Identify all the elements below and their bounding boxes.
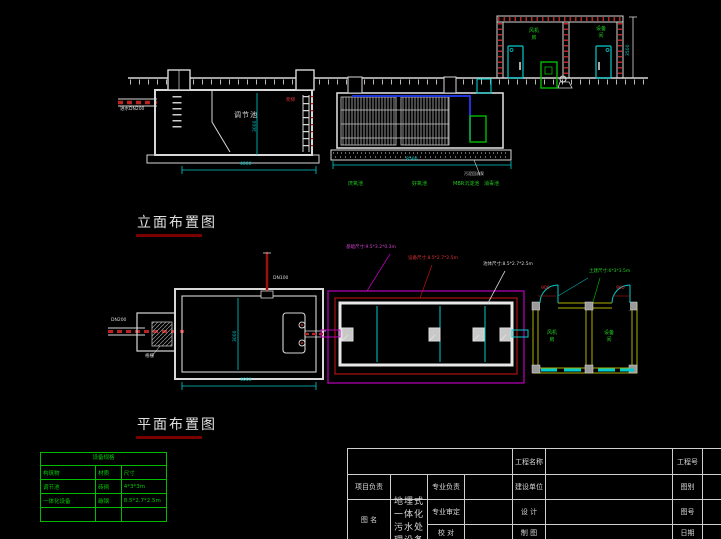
elevation-compartment-anaerobic: 厌氧池 bbox=[348, 182, 363, 188]
date-label: 日期 bbox=[673, 525, 703, 539]
spec-header-structure: 构筑物 bbox=[41, 466, 95, 479]
plan-heading: 平面布置图 bbox=[137, 418, 217, 433]
elevation-compartment-settling: MBR沉淀池 bbox=[453, 182, 479, 188]
spec-table-header-row: 构筑物 材质 尺寸 bbox=[41, 465, 166, 479]
check-value bbox=[465, 525, 513, 539]
plan-vent-label: DN100 bbox=[273, 277, 288, 282]
spec-cell: 调节池 bbox=[41, 480, 95, 493]
spec-cell: 一体化设备 bbox=[41, 494, 95, 507]
design-label: 设 计 bbox=[513, 500, 546, 525]
spec-table-row-equipment: 一体化设备 碳钢 8.5*2.7*2.5m bbox=[41, 493, 166, 507]
elevation-heading: 立面布置图 bbox=[137, 216, 217, 231]
spec-cell bbox=[95, 508, 121, 521]
elevation-room-right-label: 设备间 bbox=[595, 26, 607, 39]
plan-foundation-leader-label: 基础尺寸:9.5*3.2*0.3m bbox=[346, 246, 396, 251]
elevation-tank-label: 调节池 bbox=[234, 112, 258, 120]
plan-building-leader-label: 土建尺寸:6*3*3.5m bbox=[589, 270, 630, 275]
elevation-inlet-pipe bbox=[118, 99, 157, 106]
plan-inlet bbox=[108, 328, 184, 335]
drawing-title: 地埋式一体化污水处理设备 bbox=[391, 500, 428, 539]
elevation-inlet-label: 进水DN200 bbox=[120, 108, 144, 113]
elevation-sludge-pump-note: 污泥回流泵 bbox=[464, 172, 484, 176]
plan-tank-width-dim: 4000 bbox=[240, 379, 251, 384]
cad-drawing-canvas[interactable]: 立面布置图 平面布置图 进水DN200 调节池 爬梯 3000 4000 850… bbox=[0, 0, 721, 539]
spec-cell: 8.5*2.7*2.5m bbox=[121, 494, 166, 507]
client-label: 建设单位 bbox=[513, 475, 546, 500]
title-block: 工程名称 工程号 项目负责 专业负责 建设单位 图别 专业审定 设 计 图 名 … bbox=[347, 448, 721, 539]
plan-door-right-dim: 900 bbox=[616, 287, 625, 292]
elevation-heading-underline bbox=[136, 234, 202, 237]
lead-value bbox=[465, 475, 513, 500]
elevation-tank-width-dim: 4000 bbox=[240, 163, 251, 168]
spec-table-title: 设备规格 bbox=[41, 453, 166, 465]
elevation-building-height-dim: 3500 bbox=[627, 45, 632, 56]
plan-inlet-label: DN200 bbox=[111, 319, 126, 324]
project-no-label: 工程号 bbox=[673, 449, 703, 475]
design-value bbox=[546, 500, 673, 525]
plan-screen-label: 格栅 bbox=[145, 355, 154, 360]
elevation-equipment bbox=[331, 77, 511, 175]
elevation-ground-line bbox=[128, 78, 648, 82]
dwgno-label: 图号 bbox=[673, 500, 703, 525]
dwgno-value bbox=[703, 500, 721, 525]
plan-room-right-label: 设备间 bbox=[603, 330, 615, 343]
plan-heading-underline bbox=[136, 436, 202, 439]
titleblock-empty-cell bbox=[348, 449, 513, 475]
spec-cell: 4*3*3m bbox=[121, 480, 166, 493]
lead-label: 专业负责 bbox=[428, 475, 465, 500]
elevation-ladder-label: 爬梯 bbox=[286, 99, 295, 104]
client-value bbox=[546, 475, 673, 500]
project-name-label: 工程名称 bbox=[513, 449, 546, 475]
plan-tankbody-leader-label: 池体尺寸:8.5*2.7*2.5m bbox=[483, 263, 533, 268]
spec-table-row-empty bbox=[41, 507, 166, 521]
review-value bbox=[465, 500, 513, 525]
plan-building bbox=[532, 278, 637, 373]
elevation-tank-height-dim: 3000 bbox=[254, 121, 259, 132]
project-name-value bbox=[546, 449, 673, 475]
spec-cell: 碳钢 bbox=[95, 494, 121, 507]
draft-label: 制 图 bbox=[513, 525, 546, 539]
spec-cell: 砖砌 bbox=[95, 480, 121, 493]
spec-table: 设备规格 构筑物 材质 尺寸 调节池 砖砌 4*3*3m 一体化设备 碳钢 8.… bbox=[40, 452, 167, 522]
plan-room-left-label: 风机房 bbox=[546, 330, 558, 343]
plan-tank-height-dim: 3000 bbox=[234, 331, 239, 342]
spec-header-material: 材质 bbox=[95, 466, 121, 479]
spec-header-size: 尺寸 bbox=[121, 466, 166, 479]
category-label: 图别 bbox=[673, 475, 703, 500]
category-value bbox=[703, 475, 721, 500]
elevation-regulating-tank bbox=[147, 70, 319, 174]
check-label: 校 对 bbox=[428, 525, 465, 539]
dwgname-label: 图 名 bbox=[348, 500, 391, 539]
spec-cell bbox=[121, 508, 166, 521]
spec-table-row-tank: 调节池 砖砌 4*3*3m bbox=[41, 479, 166, 493]
spec-cell bbox=[41, 508, 95, 521]
plan-equipment-leader-label: 设备尺寸:8.5*2.7*2.5m bbox=[408, 257, 458, 262]
plan-equipment bbox=[321, 254, 528, 383]
elevation-equipment-width-dim: 8500 bbox=[406, 158, 417, 163]
plan-regulating-tank bbox=[175, 252, 326, 390]
spec-table-title-text: 设备规格 bbox=[92, 453, 114, 465]
pm-label: 项目负责 bbox=[348, 475, 391, 500]
draft-value bbox=[546, 525, 673, 539]
plan-door-left-dim: 900 bbox=[541, 287, 550, 292]
elevation-compartment-aerobic: 好氧池 bbox=[412, 182, 427, 188]
date-value bbox=[703, 525, 721, 539]
elevation-room-left-label: 风机房 bbox=[528, 28, 540, 41]
elevation-compartment-disinfection: 消毒池 bbox=[484, 182, 499, 188]
review-label: 专业审定 bbox=[428, 500, 465, 525]
project-no-value bbox=[703, 449, 721, 475]
